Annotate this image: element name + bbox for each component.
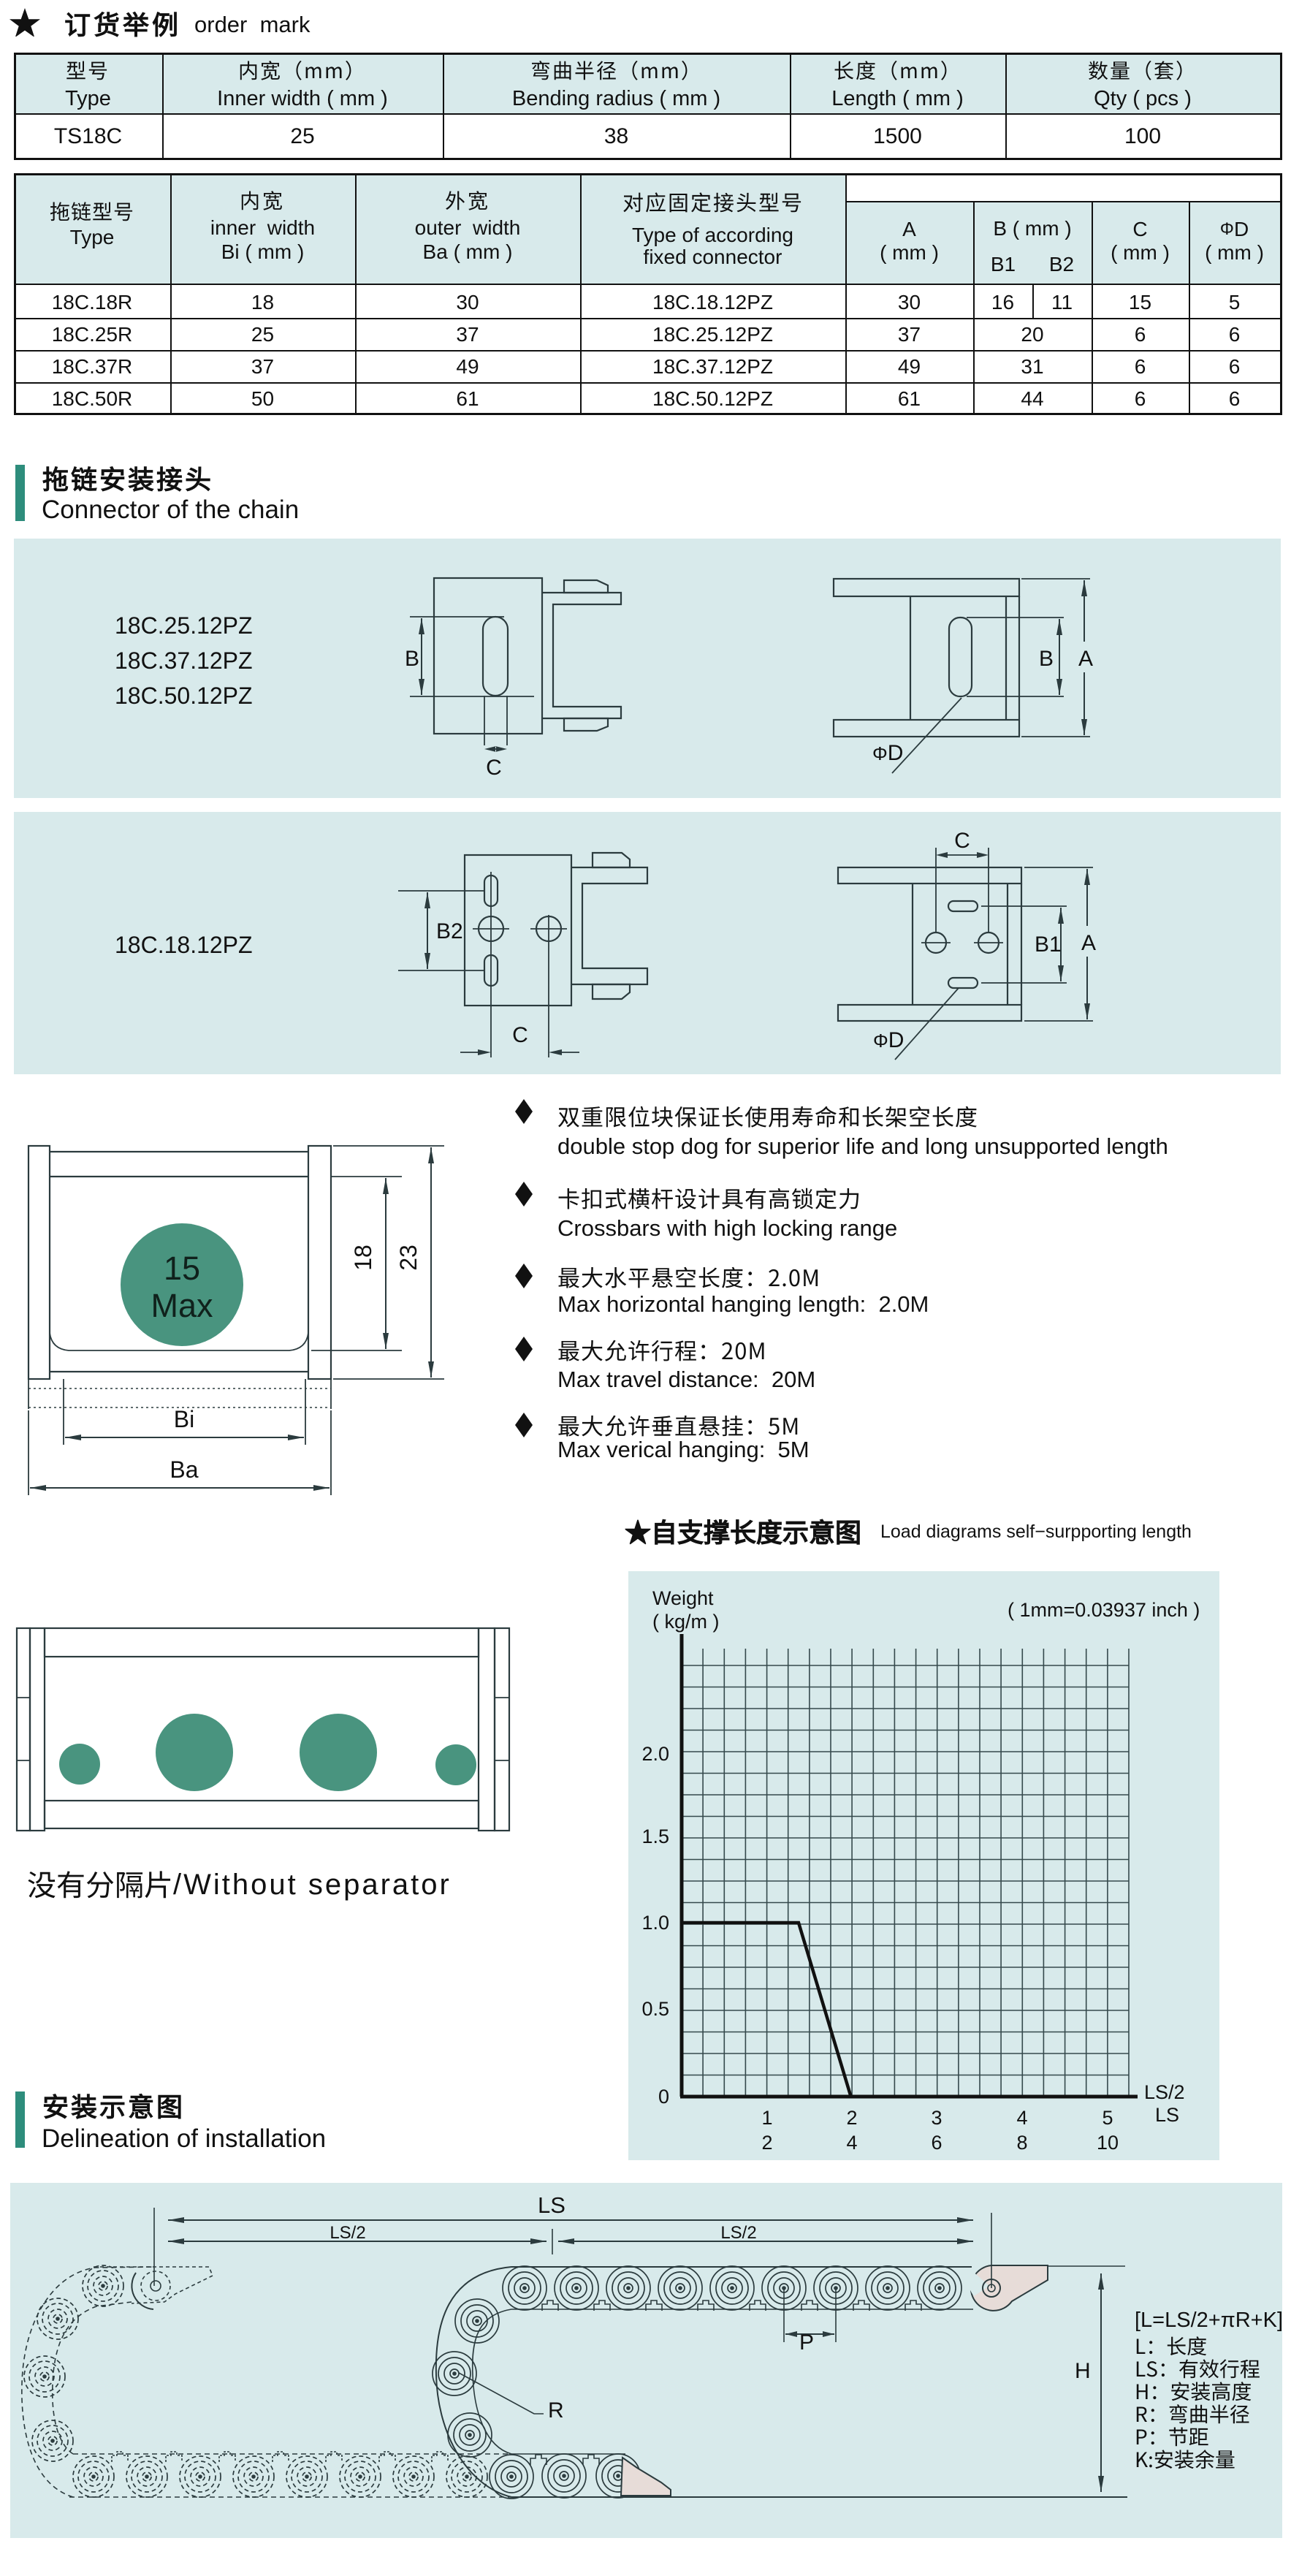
svg-text:LS/2: LS/2 [330, 2223, 365, 2243]
svg-text:P: P [799, 2330, 814, 2355]
svg-text:LS: LS [538, 2192, 565, 2218]
svg-text:LS/2: LS/2 [720, 2223, 756, 2243]
svg-text:H: H [1075, 2359, 1091, 2383]
svg-text:R: R [548, 2398, 564, 2423]
